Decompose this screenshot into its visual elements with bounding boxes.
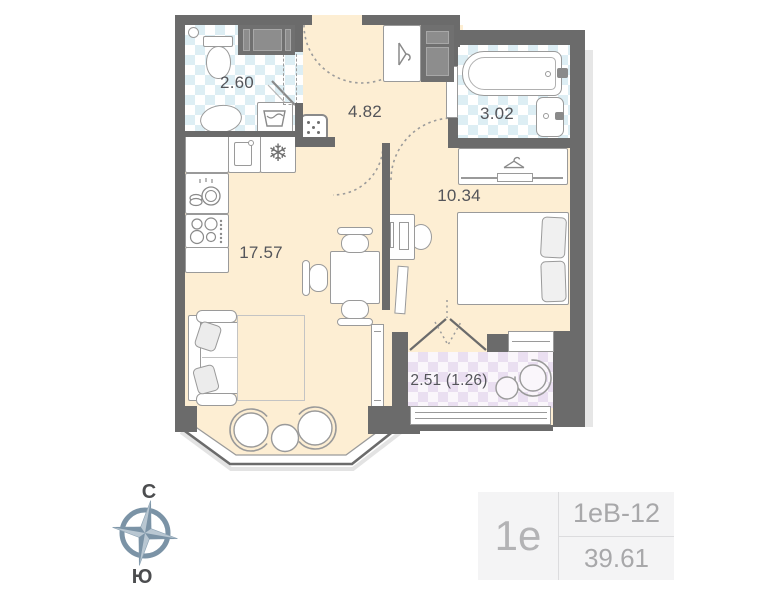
window-frame-line	[374, 331, 381, 332]
unit-code: 1еВ-12	[559, 492, 674, 537]
hallway-area-label: 4.82	[348, 102, 382, 122]
sofa-bed-extension	[237, 315, 305, 401]
chair-bottom-back	[337, 318, 373, 326]
panel-dot	[307, 131, 310, 134]
wall-top-left	[175, 15, 312, 25]
wc-area-label: 2.60	[220, 73, 254, 93]
kitchen-counter-corner	[185, 135, 229, 173]
floor-plan-page: ❄	[0, 0, 760, 600]
unit-total-area: 39.61	[559, 537, 674, 581]
bedroom-closet	[458, 148, 568, 185]
balcony-door-leaf-right	[450, 319, 486, 350]
compass-north-label: С	[142, 481, 156, 503]
bathtub-inner	[468, 57, 556, 90]
wall-top-right	[362, 15, 454, 25]
closet-handle	[497, 173, 533, 182]
balcony-area-label: 2.51 (1.26)	[410, 372, 487, 390]
wall-wc-right-top	[295, 25, 303, 52]
kitchen-faucet-icon	[248, 140, 254, 146]
shadow-right-wall	[585, 50, 593, 427]
balcony-table	[496, 377, 518, 399]
ceiling-light-icon	[188, 27, 199, 38]
panel-dot	[312, 126, 315, 129]
bay-side-table	[272, 425, 299, 452]
sofa-cushion-line	[202, 357, 238, 358]
compass: С Ю	[108, 478, 188, 590]
bay-armchair-right-seat	[298, 411, 332, 445]
balcony-window-bottom	[410, 406, 551, 425]
panel-dot	[317, 131, 320, 134]
window-frame-line	[512, 341, 550, 342]
sofa-armrest-bottom	[196, 393, 237, 406]
desk-monitor	[390, 222, 394, 248]
bedroom-area-label: 10.34	[437, 186, 481, 206]
shaft-panel	[285, 29, 291, 51]
chair-left-seat	[309, 264, 328, 292]
plan-type: 1е	[478, 492, 559, 580]
wall-bathroom-bottom	[448, 138, 570, 148]
wall-bathroom-top	[454, 30, 585, 45]
bathroom-faucet-icon	[555, 112, 564, 120]
wall-balcony-stub	[487, 334, 508, 352]
bedroom-door-arc	[391, 118, 453, 180]
panel-dot	[307, 121, 310, 124]
wall-right-lower	[553, 331, 585, 427]
fridge: ❄	[260, 135, 296, 173]
wall-right-upper	[570, 43, 585, 345]
kitchen-counter-low	[185, 247, 229, 273]
window-midwall	[371, 324, 384, 408]
bed-pillow-bottom	[540, 261, 566, 303]
bathtub	[462, 51, 562, 96]
bathtub-faucet-icon	[557, 68, 568, 78]
panel-dot	[317, 121, 320, 124]
vent-shaft-hall	[421, 25, 454, 82]
desk-item	[399, 222, 409, 250]
wall-hall-living-stub	[295, 137, 335, 147]
balcony-window-right	[508, 331, 554, 352]
dining-table	[330, 251, 380, 304]
compass-south-label: Ю	[132, 566, 153, 588]
unit-details: 1еВ-12 39.61	[559, 492, 674, 580]
chair-bottom-seat	[341, 300, 369, 319]
vent-shaft-wc	[238, 25, 295, 55]
kitchen-sink-unit	[228, 135, 261, 173]
hanger-icon	[384, 36, 420, 72]
shaft-panel	[426, 31, 449, 44]
bathroom-sink	[536, 97, 564, 137]
stove	[185, 214, 229, 248]
living-area-label: 17.57	[239, 243, 283, 263]
snowflake-icon: ❄	[268, 142, 288, 166]
bed-pillow-top	[540, 216, 567, 258]
window-frame-line	[374, 400, 381, 401]
wc-sliding-door	[283, 49, 297, 105]
wall-bathroom-left-bottom	[448, 118, 458, 140]
balcony-chair-seat	[520, 365, 546, 391]
dish-dryer-unit	[185, 173, 229, 214]
stove-burners-icon	[186, 215, 227, 246]
bay-corner-left	[175, 406, 197, 432]
chair-top-seat	[341, 234, 369, 253]
bathroom-area-label: 3.02	[480, 104, 514, 124]
window-frame-line	[415, 418, 547, 419]
bathtub-drain-icon	[545, 71, 551, 77]
bay-armchair-left-seat	[234, 413, 268, 447]
shaft-panel	[253, 29, 282, 51]
balcony-door-leaf-left	[410, 319, 446, 350]
laundry-basket-icon	[258, 103, 291, 133]
bathroom-sink-drain	[543, 113, 549, 119]
living-door-arc	[333, 145, 383, 195]
window-frame-line	[415, 412, 547, 413]
hallway-closet	[383, 25, 421, 82]
wall-partition-living-bedroom	[382, 143, 390, 310]
shaft-panel	[426, 47, 449, 76]
wall-wc-bottom	[185, 131, 297, 137]
unit-info-card: 1е 1еВ-12 39.61	[478, 492, 674, 580]
shaft-panel	[243, 29, 250, 51]
wall-balcony-bottom-strip	[410, 425, 553, 431]
hanger-icon	[496, 153, 532, 173]
wall-wc-right-bottom	[295, 103, 303, 138]
wall-left	[175, 15, 185, 410]
dishes-icon	[186, 174, 227, 212]
